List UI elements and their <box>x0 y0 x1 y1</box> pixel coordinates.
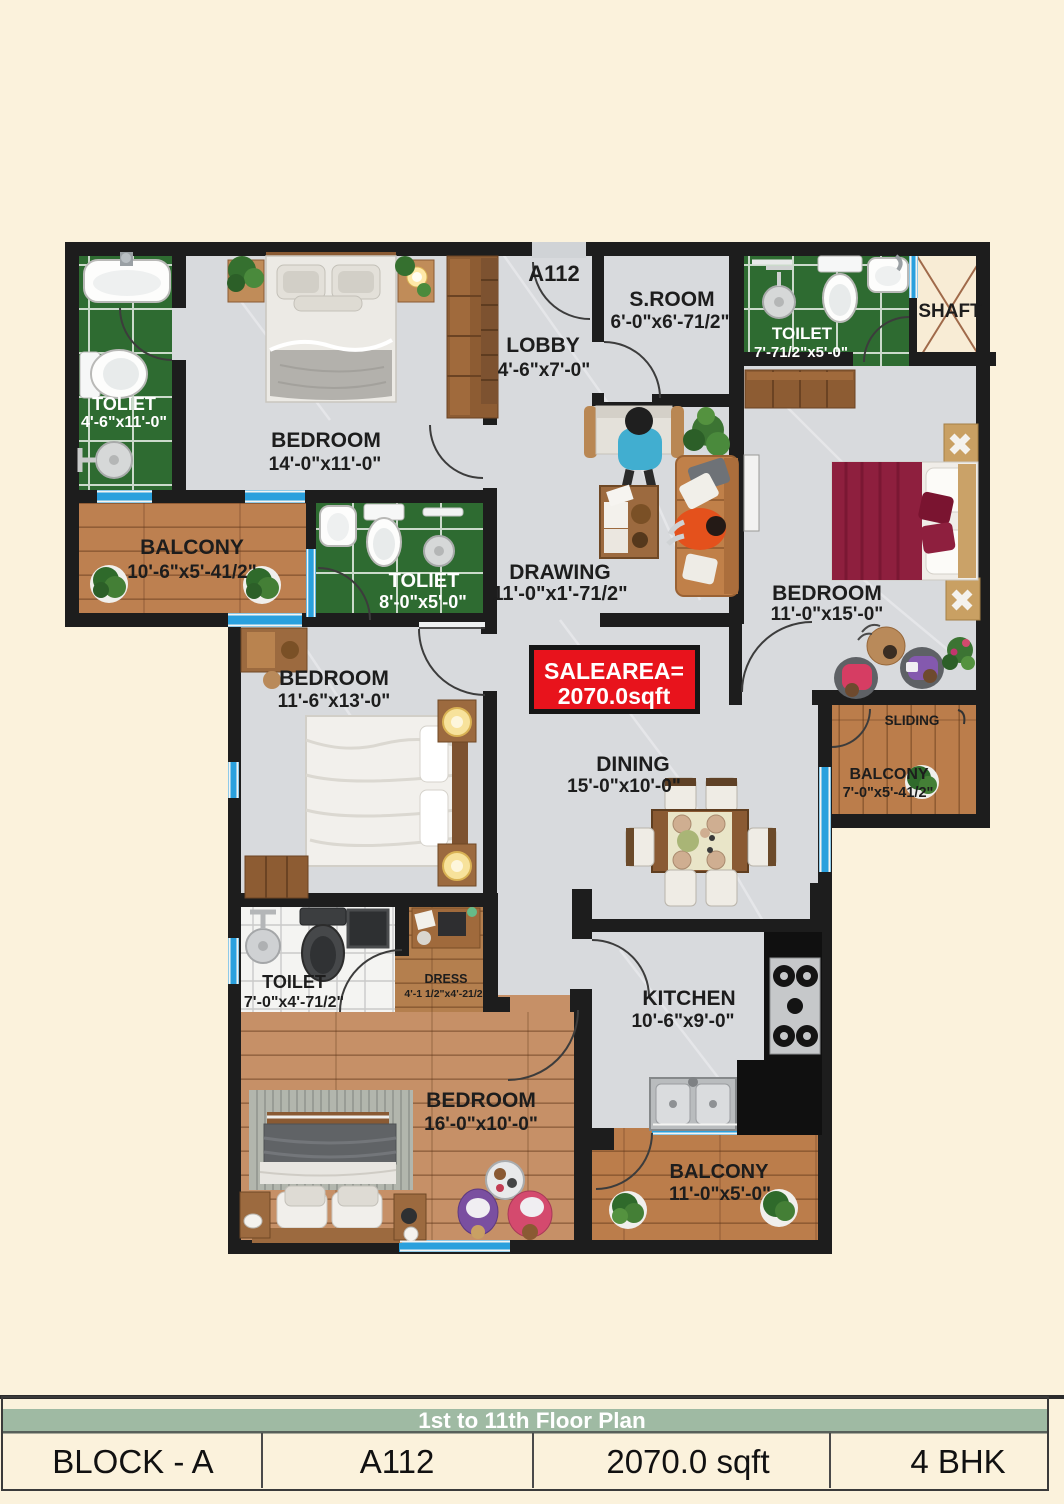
svg-text:2070.0sqft: 2070.0sqft <box>558 683 671 709</box>
svg-text:BALCONY: BALCONY <box>140 536 244 559</box>
svg-text:BLOCK - A: BLOCK - A <box>52 1443 213 1480</box>
svg-text:BALCONY: BALCONY <box>670 1161 770 1183</box>
svg-text:SHAFT: SHAFT <box>918 301 982 322</box>
svg-text:11'-6"x13'-0": 11'-6"x13'-0" <box>278 691 391 712</box>
svg-text:7'-0"x5'-41/2": 7'-0"x5'-41/2" <box>843 785 934 801</box>
svg-text:10'-6"x9'-0": 10'-6"x9'-0" <box>631 1011 734 1032</box>
svg-text:2070.0 sqft: 2070.0 sqft <box>606 1443 769 1480</box>
svg-text:DRAWING: DRAWING <box>509 561 611 584</box>
svg-text:4 BHK: 4 BHK <box>910 1443 1005 1480</box>
svg-text:DINING: DINING <box>596 753 670 776</box>
svg-text:6'-0"x6'-71/2": 6'-0"x6'-71/2" <box>611 312 730 333</box>
svg-text:TOLIET: TOLIET <box>389 570 460 592</box>
svg-text:BEDROOM: BEDROOM <box>271 429 381 452</box>
svg-text:LOBBY: LOBBY <box>506 334 580 357</box>
svg-text:TOLIET: TOLIET <box>92 394 156 414</box>
svg-text:10'-6"x5'-41/2": 10'-6"x5'-41/2" <box>127 562 257 583</box>
svg-text:BEDROOM: BEDROOM <box>772 582 882 605</box>
svg-text:TOILET: TOILET <box>262 972 326 992</box>
svg-text:KITCHEN: KITCHEN <box>642 987 735 1010</box>
svg-text:8'-0"x5'-0": 8'-0"x5'-0" <box>379 592 467 612</box>
svg-text:A112: A112 <box>528 261 579 286</box>
svg-text:14'-0"x11'-0": 14'-0"x11'-0" <box>269 454 382 475</box>
svg-text:TOILET: TOILET <box>772 324 833 343</box>
svg-text:11'-0"x1'-71/2": 11'-0"x1'-71/2" <box>492 583 627 605</box>
svg-text:7'-0"x4'-71/2": 7'-0"x4'-71/2" <box>244 994 344 1011</box>
svg-text:7'-71/2"x5'-0": 7'-71/2"x5'-0" <box>754 344 848 361</box>
svg-text:SLIDING: SLIDING <box>885 713 940 728</box>
svg-text:SALEAREA=: SALEAREA= <box>544 658 684 684</box>
svg-text:4'-1 1/2"x4'-21/2": 4'-1 1/2"x4'-21/2" <box>404 988 487 1000</box>
svg-text:S.ROOM: S.ROOM <box>629 288 714 311</box>
svg-text:BEDROOM: BEDROOM <box>426 1089 536 1112</box>
svg-text:11'-0"x15'-0": 11'-0"x15'-0" <box>771 604 884 625</box>
svg-text:BALCONY: BALCONY <box>849 766 928 783</box>
svg-text:16'-0"x10'-0": 16'-0"x10'-0" <box>424 1114 538 1135</box>
svg-text:BEDROOM: BEDROOM <box>279 667 389 690</box>
svg-text:4'-6"x11'-0": 4'-6"x11'-0" <box>81 414 167 431</box>
svg-text:A112: A112 <box>360 1443 435 1480</box>
svg-text:4'-6"x7'-0": 4'-6"x7'-0" <box>498 360 591 381</box>
svg-text:DRESS: DRESS <box>424 972 467 986</box>
svg-text:1st to 11th Floor Plan: 1st to 11th Floor Plan <box>418 1408 646 1433</box>
svg-text:15'-0"x10'-0": 15'-0"x10'-0" <box>567 776 681 797</box>
svg-text:11'-0"x5'-0": 11'-0"x5'-0" <box>669 1184 771 1205</box>
